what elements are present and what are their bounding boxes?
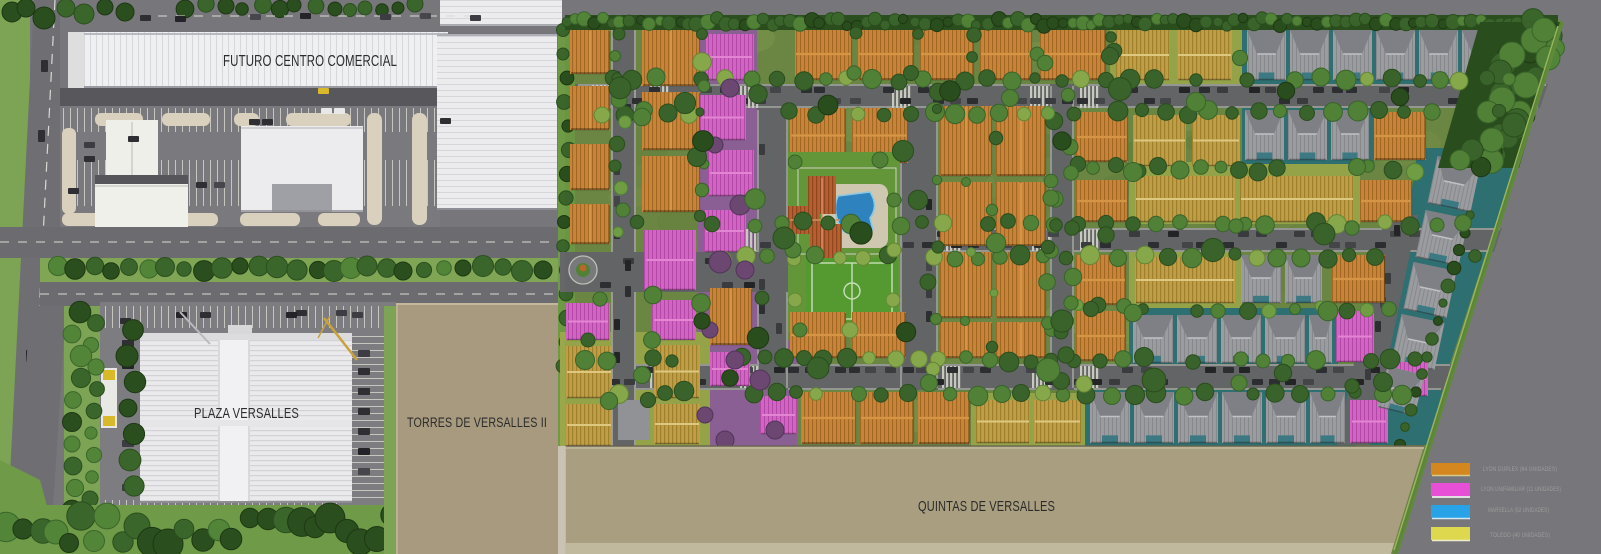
svg-text:MARSELLA (52 UNIDADES): MARSELLA (52 UNIDADES) (1488, 508, 1549, 514)
svg-text:TORRES DE VERSALLES II: TORRES DE VERSALLES II (407, 415, 547, 430)
svg-text:LYON DUPLEX (64 UNIDADES): LYON DUPLEX (64 UNIDADES) (1483, 467, 1557, 473)
svg-text:PLAZA VERSALLES: PLAZA VERSALLES (194, 405, 299, 422)
svg-text:LYON UNIFAMILIAR (11 UNIDADES): LYON UNIFAMILIAR (11 UNIDADES) (1481, 487, 1561, 493)
svg-text:TOLEDO (40 UNIDADES): TOLEDO (40 UNIDADES) (1490, 533, 1550, 539)
svg-text:FUTURO CENTRO COMERCIAL: FUTURO CENTRO COMERCIAL (223, 53, 397, 70)
